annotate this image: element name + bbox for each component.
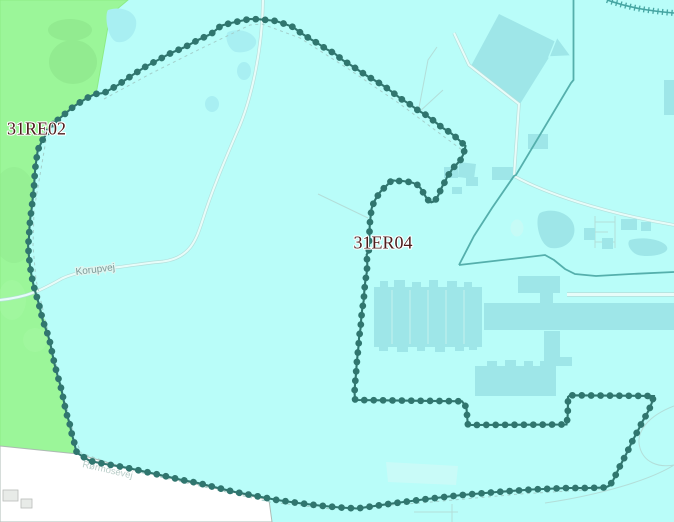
svg-text:31ER04: 31ER04 bbox=[354, 233, 413, 253]
svg-text:31RE02: 31RE02 bbox=[7, 119, 66, 139]
